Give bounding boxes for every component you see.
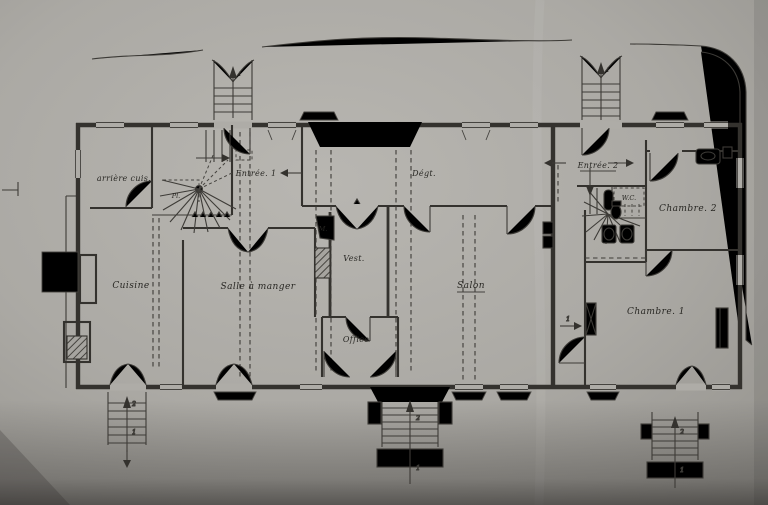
- label-entree-1: Entrée. 1: [235, 169, 277, 178]
- basin-right-bowl: [622, 228, 632, 240]
- label-office: Office: [343, 335, 369, 344]
- south-porch: [370, 387, 450, 402]
- salon-flue-1: [543, 222, 553, 234]
- step-number: 1: [566, 316, 570, 323]
- west-terrace: [42, 252, 78, 292]
- floor-plan-svg: 1 1: [0, 0, 768, 505]
- step-number: 1: [606, 67, 610, 74]
- chambre2-sink-side: [723, 147, 732, 158]
- stair-wing-left: [368, 402, 381, 424]
- newel-post: [604, 190, 613, 210]
- label-arriere-cuisine: arrière cuis.: [97, 174, 151, 183]
- scanned-plan-photo: 1 1: [0, 0, 768, 505]
- label-monte: M.: [318, 225, 328, 233]
- label-placard: Pl.: [171, 192, 181, 200]
- east-wall-recess: [716, 308, 728, 348]
- cellar-hatch: [67, 336, 87, 359]
- label-salle-a-manger: Salle à manger: [220, 281, 295, 292]
- label-cuisine: Cuisine: [112, 281, 149, 291]
- label-degagement: Dégt.: [411, 169, 436, 178]
- salon-flue-2: [543, 236, 553, 248]
- label-chambre-1: Chambre. 1: [627, 307, 685, 317]
- step-number: 1: [238, 71, 242, 78]
- label-vestibule: Vest.: [343, 254, 364, 263]
- salle-fireplace: [315, 248, 330, 278]
- label-salon: Salon: [457, 281, 485, 291]
- step-number: 1: [680, 467, 684, 474]
- chambre2-sink-bowl: [701, 152, 715, 160]
- step-number: 2: [415, 415, 420, 422]
- label-wc: W.C.: [622, 194, 636, 202]
- label-chambre-2: Chambre. 2: [659, 204, 717, 214]
- toilet: [611, 205, 621, 219]
- stair-wing-left: [641, 424, 652, 439]
- north-centre-bay: [308, 122, 422, 147]
- toilet-tank: [612, 201, 621, 206]
- step-number: 1: [416, 465, 420, 472]
- edge-shadow: [754, 0, 768, 505]
- stair-wing-right: [439, 402, 452, 424]
- step-number: 2: [679, 429, 684, 436]
- basin-left-bowl: [604, 228, 614, 240]
- step-number: 2: [131, 401, 136, 408]
- label-entree-2: Entrée. 2: [577, 161, 619, 170]
- stair-wing-right: [698, 424, 709, 439]
- step-number: 1: [132, 429, 136, 436]
